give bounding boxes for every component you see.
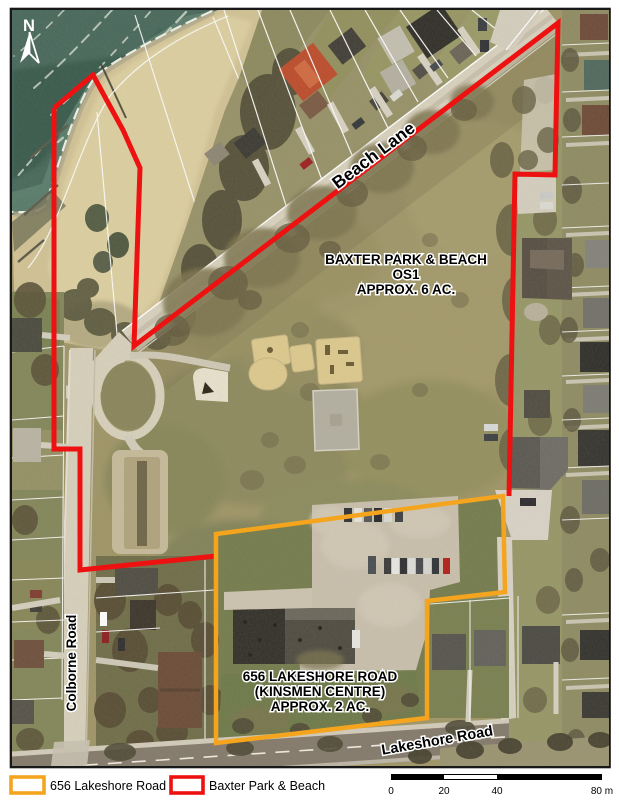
svg-text:(KINSMEN CENTRE): (KINSMEN CENTRE) [255, 684, 386, 699]
svg-text:20: 20 [438, 786, 450, 797]
svg-text:APPROX. 2 AC.: APPROX. 2 AC. [271, 699, 370, 714]
svg-text:656 Lakeshore Road: 656 Lakeshore Road [50, 779, 166, 793]
svg-text:40: 40 [491, 786, 503, 797]
svg-text:BAXTER PARK & BEACH: BAXTER PARK & BEACH [325, 252, 487, 267]
svg-text:Colborne Road: Colborne Road [64, 615, 79, 712]
svg-text:656 LAKESHORE ROAD: 656 LAKESHORE ROAD [243, 669, 398, 684]
svg-text:APPROX. 6 AC.: APPROX. 6 AC. [357, 282, 456, 297]
svg-text:0: 0 [388, 786, 394, 797]
svg-text:80 m: 80 m [591, 786, 613, 797]
svg-text:OS1: OS1 [392, 267, 420, 282]
svg-text:Baxter Park & Beach: Baxter Park & Beach [209, 779, 325, 793]
